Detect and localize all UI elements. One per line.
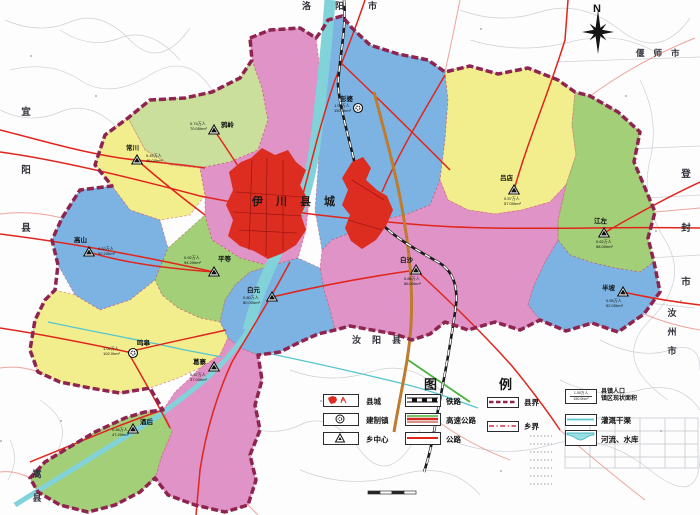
town-label-baisha: 白沙 bbox=[400, 258, 413, 265]
town-stats-gaoshan: 0.52万人50.20hm² bbox=[98, 247, 115, 256]
county-seat-label: 伊川县城 bbox=[252, 197, 348, 208]
legend-township-box bbox=[323, 432, 359, 445]
town-circle-icon bbox=[324, 414, 357, 424]
legend-river-box bbox=[565, 430, 597, 446]
legend-canal-box bbox=[565, 414, 597, 426]
town-label-lvdian: 吕店 bbox=[500, 176, 513, 183]
legend-township-label: 乡中心 bbox=[366, 436, 389, 444]
town-stats-lvdian: 0.57万人57.00hm² bbox=[504, 197, 521, 206]
town-stats-pingdeng: 0.92万人94.20hm² bbox=[184, 256, 201, 265]
legend-town-box bbox=[323, 413, 359, 426]
town-stats-jiangzuo: 0.62万人58.00hm² bbox=[596, 240, 613, 249]
neighbor-label-yanshi: 偃师市 bbox=[636, 49, 689, 58]
legend-county-boundary-label: 县界 bbox=[524, 399, 539, 407]
town-label-jiangzuo: 江左 bbox=[594, 219, 607, 226]
town-marker-minggao bbox=[129, 349, 138, 358]
expressway-icon bbox=[406, 414, 439, 424]
town-label-yaling: 鸦岭 bbox=[221, 123, 234, 130]
town-label-pingdeng: 平等 bbox=[218, 257, 231, 264]
road-icon bbox=[406, 433, 439, 443]
legend-town-label: 建制镇 bbox=[366, 417, 389, 425]
county-town-icon bbox=[324, 395, 357, 405]
township-boundary-icon bbox=[488, 422, 517, 430]
river-reservoir-icon bbox=[566, 431, 595, 444]
neighbor-label-ruzhou: 汝州市 bbox=[666, 304, 678, 361]
legend-expressway-box bbox=[405, 413, 441, 426]
legend-railway-box bbox=[405, 394, 441, 407]
legend-county-town-label: 县城 bbox=[366, 398, 381, 406]
legend-township-boundary-label: 乡界 bbox=[524, 423, 539, 431]
north-arrow-label: N bbox=[593, 4, 601, 15]
neighbor-label-yiyang: 宜阳县 bbox=[20, 84, 32, 258]
town-label-minggao: 鸣皋 bbox=[137, 341, 150, 348]
town-stats-pengpo: 1.50万人150.0hm² bbox=[334, 104, 351, 113]
railway-icon bbox=[406, 395, 439, 405]
legend-road-box bbox=[405, 432, 441, 445]
town-stats-baiyuan: 0.80万人80.00hm² bbox=[243, 296, 260, 305]
town-label-gaoshan: 高山 bbox=[74, 238, 87, 245]
legend-river-label: 河流、水库 bbox=[601, 436, 639, 444]
town-stats-yaling: 0.74万人70.00hm² bbox=[190, 122, 207, 131]
basemap-smalltext bbox=[530, 436, 552, 484]
town-stats-gezhai: 0.37万人37.00hm² bbox=[190, 373, 207, 382]
county-boundary-icon bbox=[488, 398, 517, 406]
legend-county-boundary-box bbox=[487, 397, 519, 408]
canal-icon bbox=[566, 415, 595, 424]
north-arrow-icon bbox=[582, 10, 614, 54]
legend-county-town-box bbox=[323, 394, 359, 407]
township-triangle-icon bbox=[324, 433, 357, 443]
legend-population-label: 县镇人口 镇区现状面积 bbox=[601, 389, 637, 402]
town-stats-minggao: 1.02万人102.0hm² bbox=[103, 347, 120, 356]
town-marker-pengpo bbox=[354, 104, 363, 113]
map-screenshot: N 洛阳市 偃师市 登封市 汝州市 汝阳县 嵩县 宜阳县 伊川县城 彭婆 1.5… bbox=[0, 0, 700, 515]
legend-canal-label: 灌溉干渠 bbox=[601, 417, 631, 425]
legend-township-boundary-box bbox=[487, 421, 519, 432]
neighbor-label-songxian: 嵩县 bbox=[31, 462, 43, 510]
town-stats-changchuan: 0.45万人45.00hm² bbox=[146, 154, 163, 163]
town-label-gezhai: 葛寨 bbox=[193, 360, 206, 367]
neighbor-label-dengfeng: 登封市 bbox=[680, 148, 692, 310]
region-yaling bbox=[128, 60, 268, 168]
legend-railway-label: 铁路 bbox=[446, 398, 461, 406]
legend-expressway-label: 高速公路 bbox=[446, 417, 476, 425]
neighbor-label-luoyang: 洛阳市 bbox=[302, 2, 401, 11]
region-lvdian bbox=[440, 66, 576, 214]
legend-title: 图例 bbox=[424, 374, 574, 393]
legend-population-box: 1.50万人 150.0hm² bbox=[565, 389, 597, 404]
town-label-baiyuan: 白元 bbox=[247, 288, 260, 295]
neighbor-label-ruyang: 汝阳县 bbox=[352, 336, 412, 345]
town-label-banpo: 半坡 bbox=[602, 286, 615, 293]
legend-road-label: 公路 bbox=[446, 436, 461, 444]
town-label-changchuan: 常川 bbox=[126, 146, 139, 153]
scale-bar bbox=[368, 491, 416, 494]
town-stats-baisha: 0.86万人86.00hm² bbox=[404, 277, 421, 286]
town-label-jiuhou: 酒后 bbox=[140, 420, 153, 427]
population-sample-icon: 1.50万人 150.0hm² bbox=[566, 390, 596, 403]
town-stats-banpo: 0.55万人52.00hm² bbox=[606, 299, 623, 308]
town-stats-jiuhou: 0.46万人47.20hm² bbox=[112, 428, 129, 437]
